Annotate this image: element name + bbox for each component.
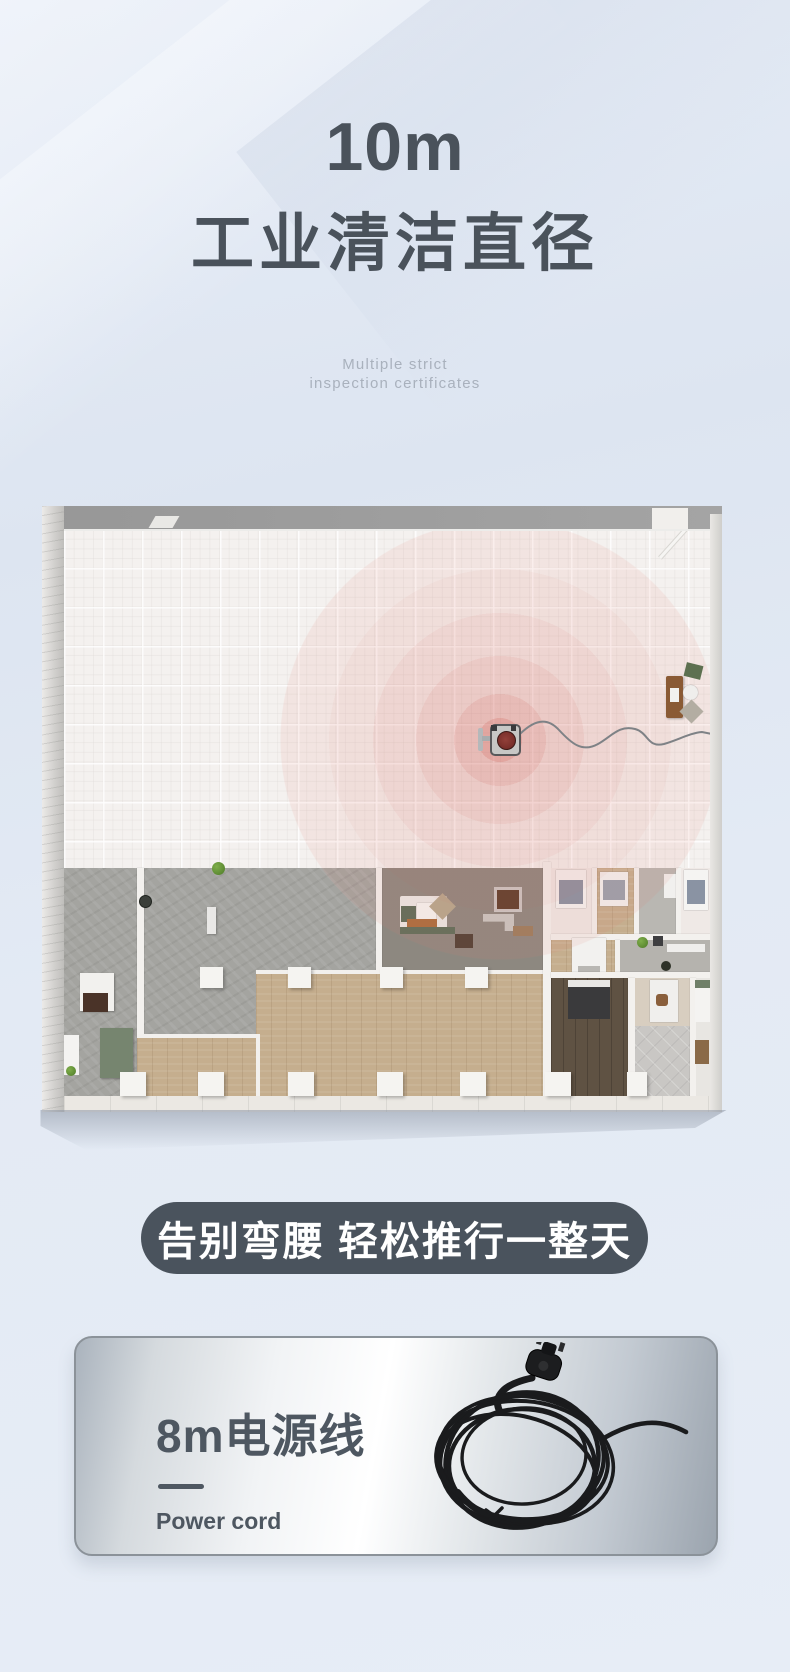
card-divider [158, 1484, 204, 1489]
subtitle: Multiple strict inspection certificates [0, 355, 790, 393]
right-wall [710, 514, 722, 1112]
pillar [288, 1072, 314, 1096]
bottom-wall [64, 1096, 710, 1112]
power-cord-path [42, 506, 722, 1112]
left-wall [42, 506, 64, 1112]
doorway [652, 508, 688, 529]
pillar [200, 967, 223, 988]
pillar [377, 1072, 403, 1096]
benefit-banner: 告别弯腰 轻松推行一整天 [141, 1202, 648, 1274]
pillar [627, 1072, 647, 1096]
top-wall [42, 506, 722, 531]
pillar [380, 967, 403, 988]
power-cord-card: 8m电源线 Power cord [74, 1336, 718, 1556]
pillar [198, 1072, 224, 1096]
subtitle-line2: inspection certificates [0, 374, 790, 393]
power-cord-icon [394, 1342, 690, 1552]
pillar [465, 967, 488, 988]
headline: 10m 工业清洁直径 [0, 112, 790, 284]
pillar [460, 1072, 486, 1096]
card-subtitle: Power cord [156, 1508, 281, 1535]
headline-value: 10m [0, 112, 790, 183]
floor-plan-shadow [30, 1110, 730, 1150]
headline-title: 工业清洁直径 [0, 193, 790, 284]
pillar [288, 967, 311, 988]
scrubber-machine-icon [478, 723, 518, 755]
subtitle-line1: Multiple strict [0, 355, 790, 374]
product-detail-page: 10m 工业清洁直径 Multiple strict inspection ce… [0, 0, 790, 1672]
pillar [545, 1072, 571, 1096]
card-title: 8m电源线 [156, 1400, 365, 1466]
pillar [120, 1072, 146, 1096]
floor-plan-image [42, 506, 722, 1112]
